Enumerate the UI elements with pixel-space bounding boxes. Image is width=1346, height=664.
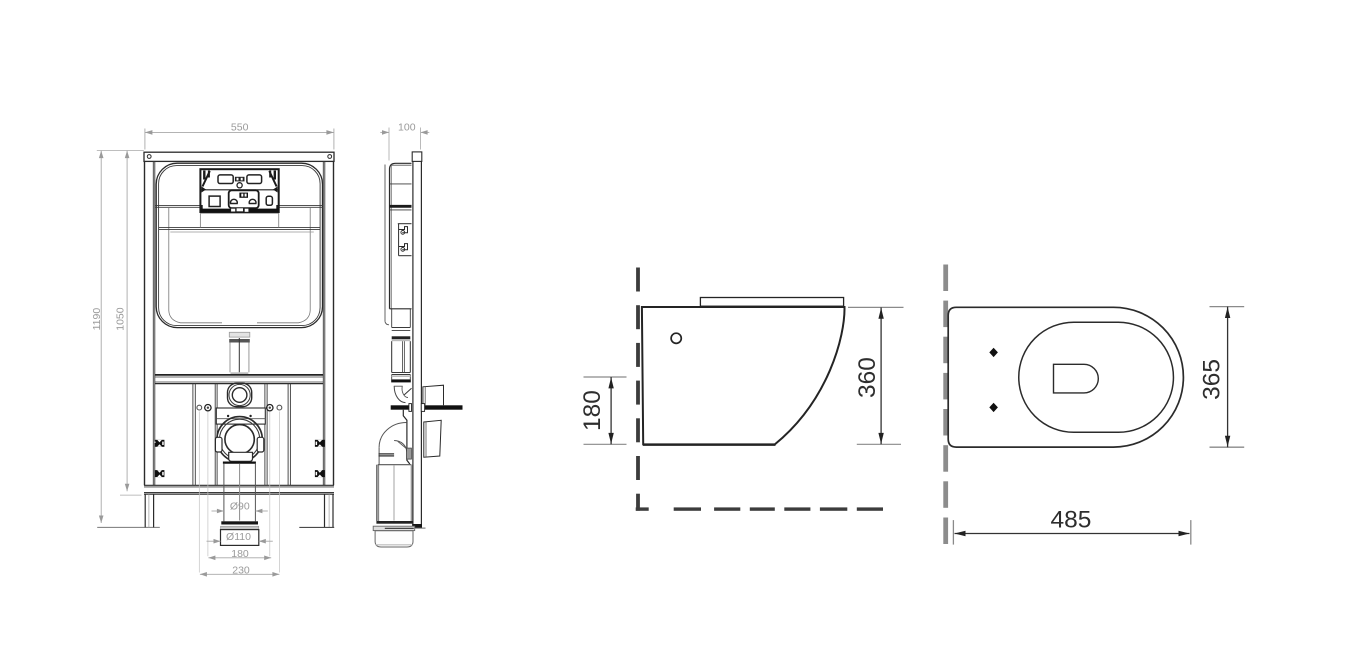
svg-text:Ø110: Ø110	[226, 531, 251, 543]
svg-text:360: 360	[854, 357, 881, 398]
svg-text:Ø90: Ø90	[230, 501, 250, 513]
svg-text:365: 365	[1198, 359, 1225, 400]
svg-text:180: 180	[579, 390, 606, 431]
svg-text:100: 100	[398, 122, 416, 134]
svg-text:485: 485	[1051, 507, 1092, 534]
svg-text:180: 180	[231, 548, 249, 560]
svg-text:550: 550	[231, 122, 249, 134]
svg-text:1190: 1190	[91, 308, 103, 331]
svg-text:230: 230	[232, 565, 250, 577]
svg-text:1050: 1050	[114, 307, 126, 331]
